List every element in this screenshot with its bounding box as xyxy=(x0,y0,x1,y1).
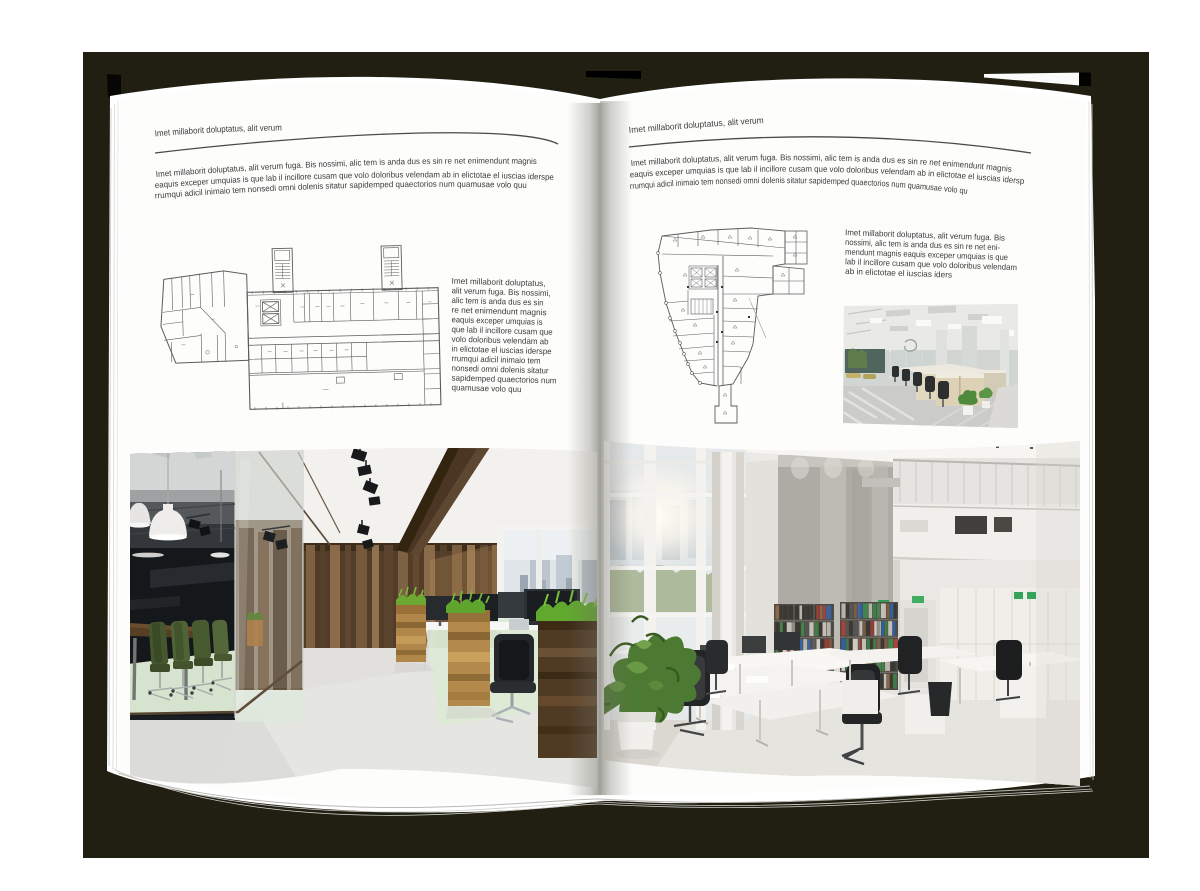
svg-text:quamusae volo quu: quamusae volo quu xyxy=(451,382,522,394)
